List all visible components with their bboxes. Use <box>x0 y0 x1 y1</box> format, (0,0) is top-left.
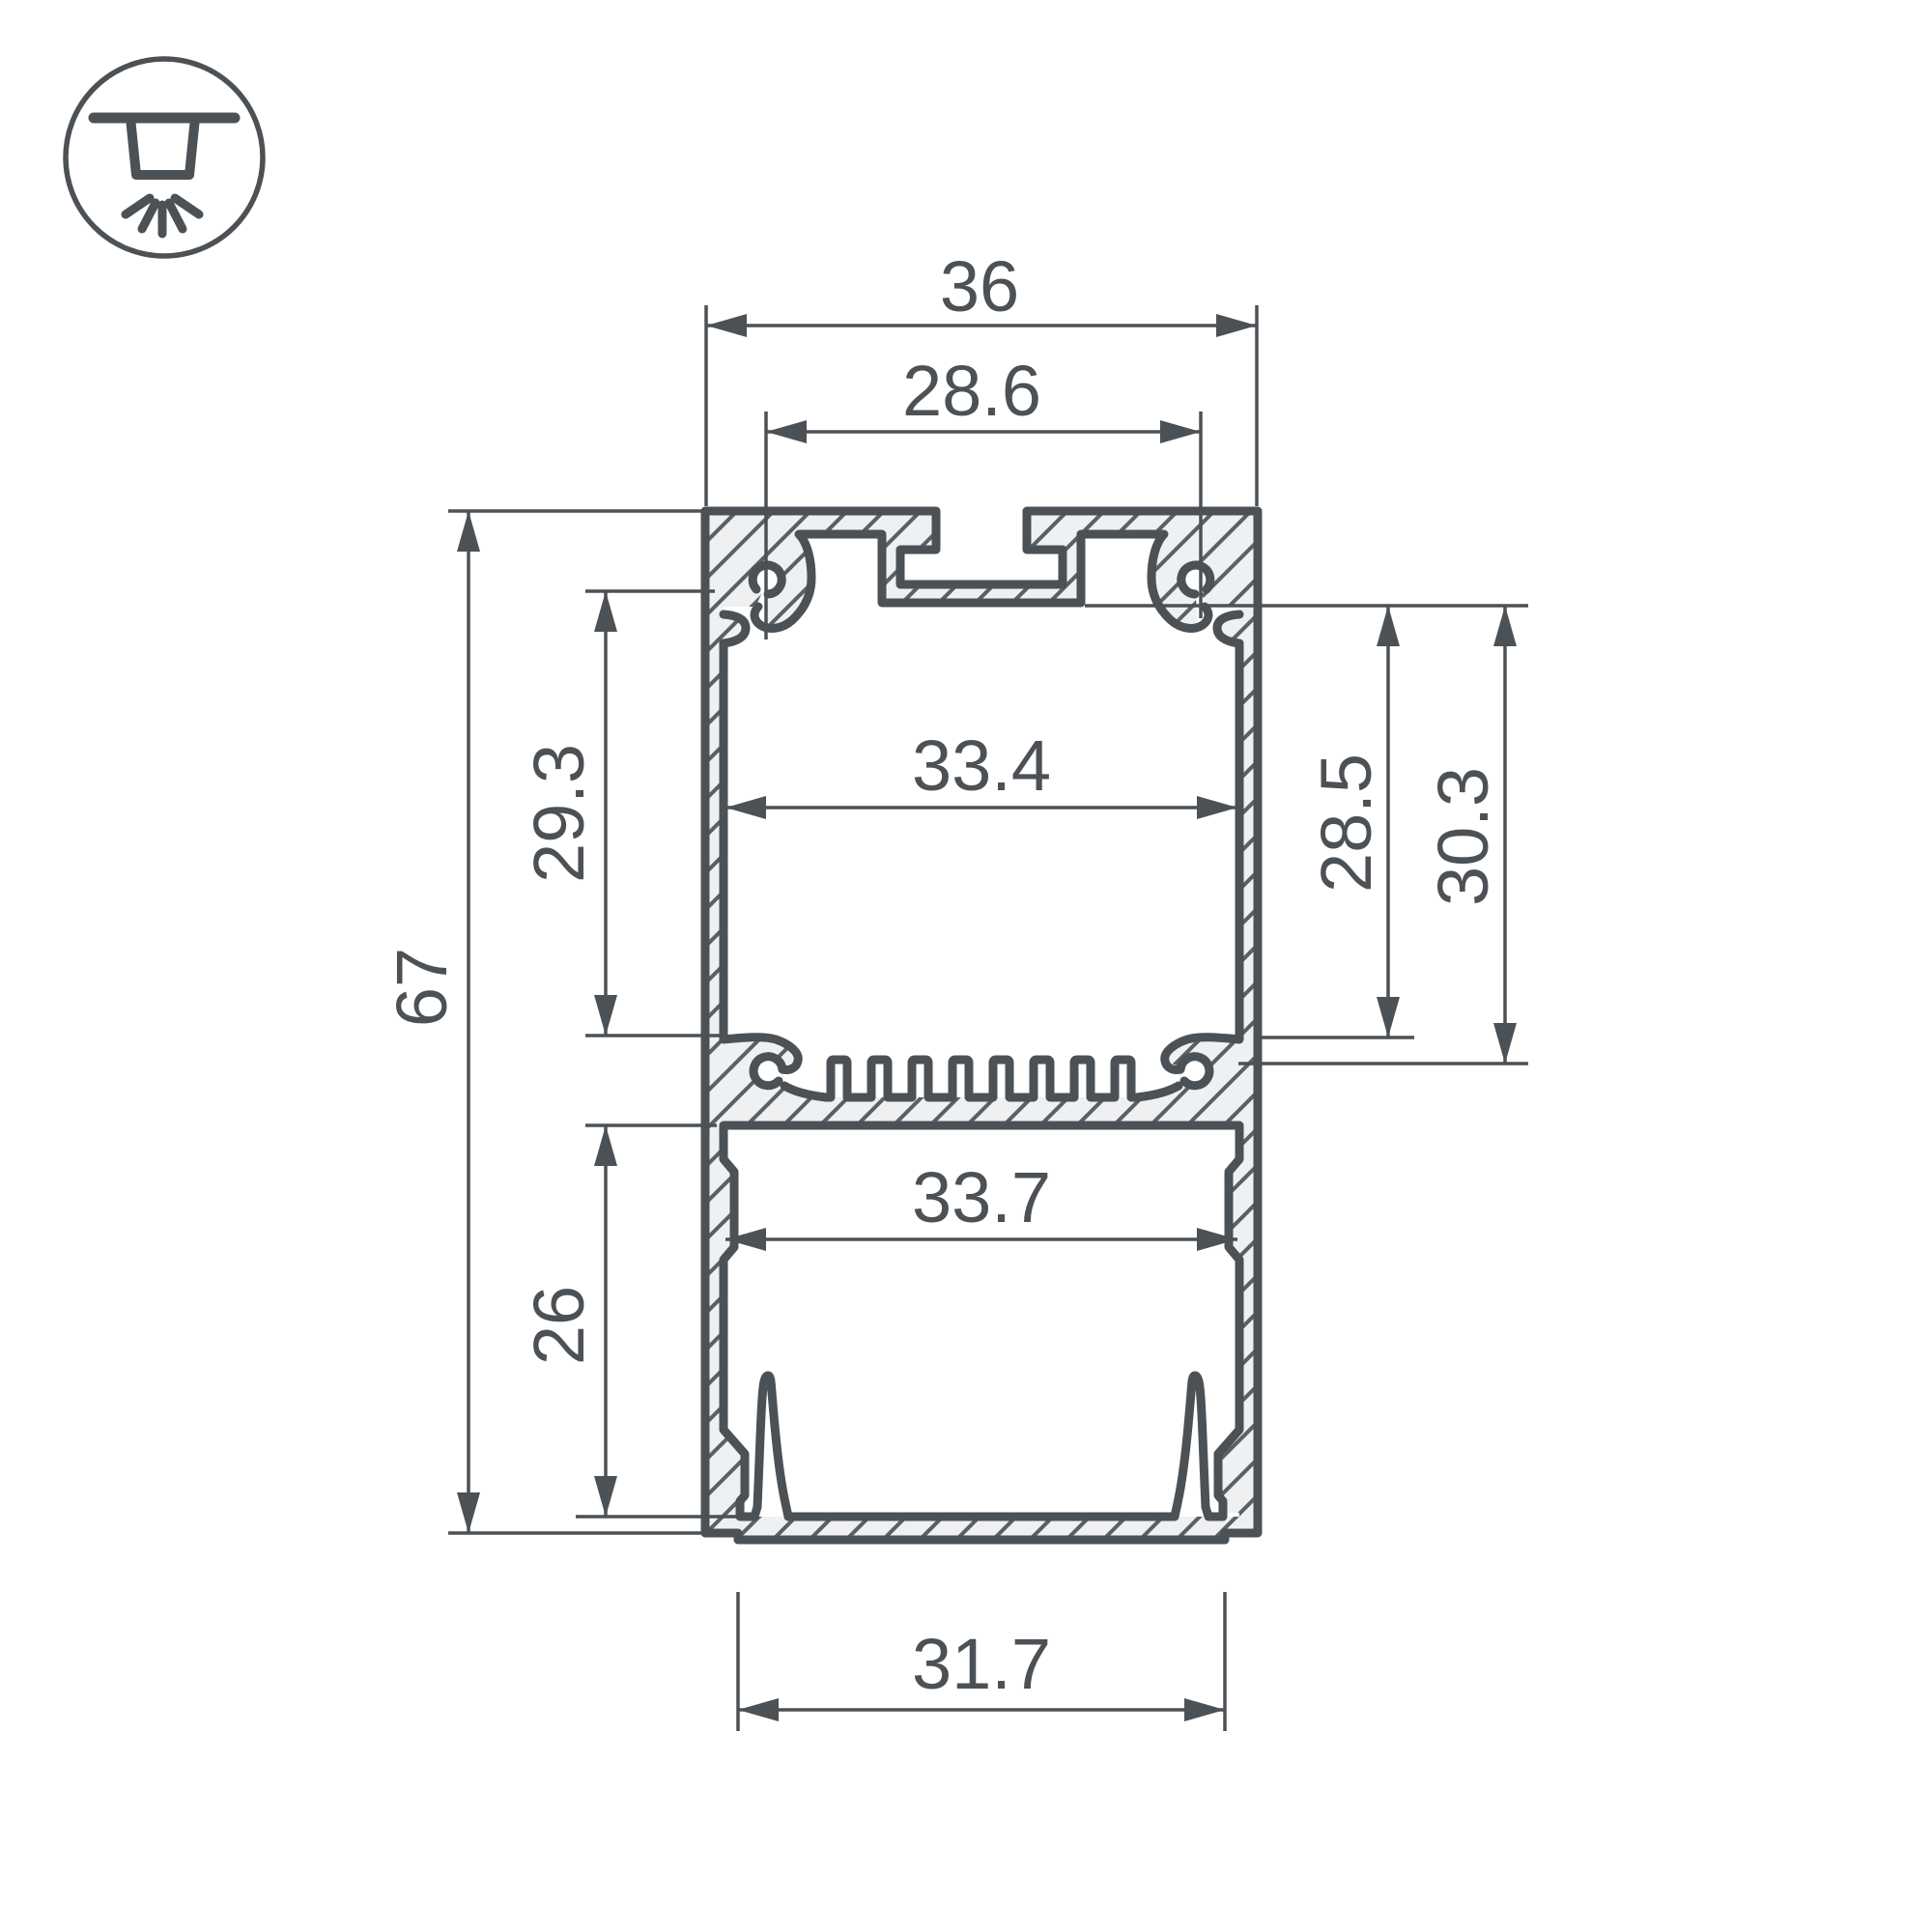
dim-label-lower-inner-width: 33.7 <box>912 1157 1051 1237</box>
dim-total-height: 67 <box>382 511 701 1533</box>
dim-label-right-inner-height: 28.5 <box>1306 753 1386 893</box>
dim-label-total-width: 36 <box>940 246 1019 327</box>
dim-bottom-opening-width: 31.7 <box>738 1592 1225 1731</box>
dim-upper-inner-height: 29.3 <box>519 591 723 1036</box>
dim-label-right-outer-height: 30.3 <box>1423 767 1503 906</box>
mid-screw-boss-left <box>724 643 798 1070</box>
mid-screw-boss-right <box>1165 643 1239 1070</box>
technical-drawing-page: 36 28.6 67 29.3 26 33.4 28.5 <box>0 0 1932 1932</box>
heatsink-fins <box>826 1060 1137 1097</box>
dim-label-bottom-opening-width: 31.7 <box>912 1624 1051 1704</box>
dim-label-upper-inner-height: 29.3 <box>519 744 599 883</box>
profile-drawing-svg: 36 28.6 67 29.3 26 33.4 28.5 <box>0 0 1932 1932</box>
light-rays-icon <box>126 198 199 234</box>
profile-outline <box>705 511 1258 1540</box>
dim-label-total-height: 67 <box>382 948 462 1027</box>
dim-upper-inner-width: 33.4 <box>725 725 1237 819</box>
dim-label-slot-width: 28.6 <box>902 351 1041 431</box>
profile-aluminum-fill <box>705 511 1258 1540</box>
dim-label-upper-inner-width: 33.4 <box>912 725 1051 806</box>
ceiling-light-icon <box>66 59 263 256</box>
dim-lower-inner-width: 33.7 <box>725 1157 1237 1251</box>
dim-label-lower-inner-height: 26 <box>519 1286 599 1365</box>
